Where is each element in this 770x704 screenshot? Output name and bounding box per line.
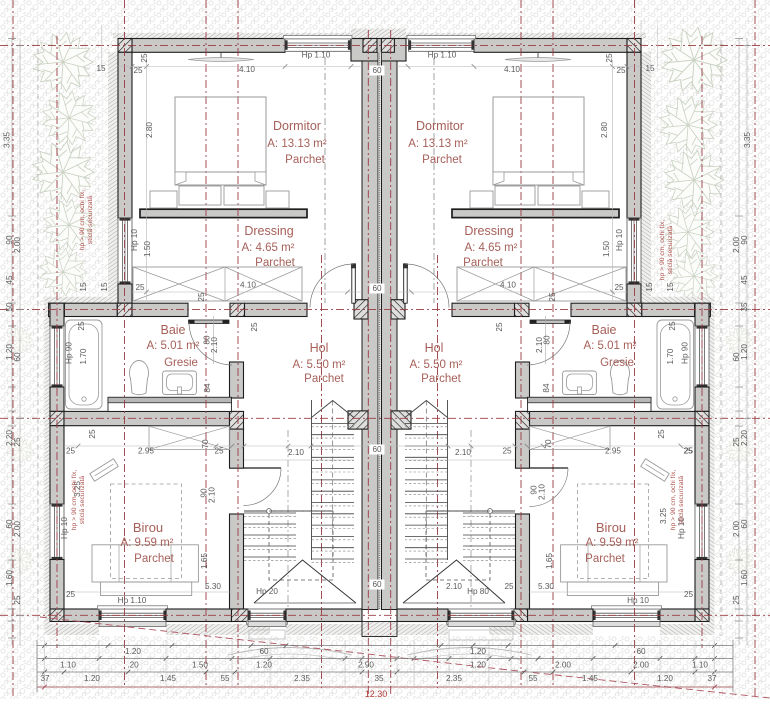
svg-text:sticlă securizată: sticlă securizată [667,226,674,275]
svg-text:Hp 1.10: Hp 1.10 [302,51,331,60]
svg-text:2.80: 2.80 [600,122,609,138]
svg-text:25: 25 [605,53,614,63]
svg-text:15: 15 [645,64,655,73]
svg-text:25: 25 [732,437,741,447]
svg-text:25: 25 [614,283,624,292]
svg-text:Hp 10: Hp 10 [615,229,624,251]
svg-text:Gresie: Gresie [164,357,198,369]
svg-text:sticlă securizată: sticlă securizată [678,476,685,525]
svg-text:1.20: 1.20 [657,674,673,683]
svg-text:25: 25 [495,322,504,332]
svg-text:25: 25 [684,590,694,599]
svg-text:35: 35 [740,302,749,312]
svg-text:25: 25 [616,66,626,75]
svg-text:1.20: 1.20 [470,661,486,670]
svg-text:45: 45 [5,275,14,285]
svg-text:12.30: 12.30 [365,689,388,699]
svg-text:1.50: 1.50 [192,661,208,670]
svg-text:15: 15 [100,282,109,292]
svg-text:Birou: Birou [133,520,163,535]
svg-text:25: 25 [214,447,224,456]
svg-text:2.10: 2.10 [208,487,217,503]
svg-text:Dormitor: Dormitor [273,119,321,133]
svg-text:45: 45 [740,275,749,285]
svg-text:2.00: 2.00 [13,521,22,537]
svg-text:1.60: 1.60 [740,570,749,586]
svg-text:2.10: 2.10 [538,484,547,500]
svg-text:A: 9.59 m²: A: 9.59 m² [120,537,173,549]
svg-text:5.30: 5.30 [538,582,554,591]
svg-text:2.10: 2.10 [288,448,304,457]
svg-text:Hp 90: Hp 90 [681,342,690,364]
svg-text:A: 13.13 m²: A: 13.13 m² [267,138,327,150]
svg-text:A: 4.65 m²: A: 4.65 m² [241,242,294,254]
svg-text:4.10: 4.10 [504,65,520,74]
svg-text:35: 35 [374,674,384,683]
svg-text:4.10: 4.10 [240,281,256,290]
svg-text:Parchet: Parchet [285,154,325,166]
svg-text:1.20: 1.20 [470,647,486,656]
svg-text:hp > 90 cm, ochi fix,: hp > 90 cm, ochi fix, [659,220,666,281]
svg-text:70: 70 [544,439,553,449]
svg-text:2.00: 2.00 [732,237,741,253]
svg-text:25: 25 [502,447,512,456]
svg-text:A: 13.13 m²: A: 13.13 m² [408,138,468,150]
svg-text:Baie: Baie [591,323,616,337]
svg-text:sticlă securizată: sticlă securizată [79,476,86,525]
svg-text:Hp 10: Hp 10 [60,517,69,539]
svg-text:15: 15 [79,282,88,292]
svg-text:sticlă securizată: sticlă securizată [87,196,94,245]
svg-text:1.20: 1.20 [84,674,100,683]
svg-text:37: 37 [40,674,50,683]
svg-text:25: 25 [250,322,259,332]
svg-text:Parchet: Parchet [422,154,462,166]
svg-text:3.25: 3.25 [659,508,668,524]
svg-text:15: 15 [96,64,106,73]
svg-text:Hp 1.10: Hp 1.10 [118,596,147,605]
svg-text:25: 25 [548,292,557,302]
svg-text:60: 60 [372,445,382,454]
svg-text:2.00: 2.00 [13,237,22,253]
svg-text:25: 25 [732,595,741,605]
svg-text:1.20: 1.20 [125,647,141,656]
svg-text:2.35: 2.35 [294,674,310,683]
svg-text:hp > 90 cm, ochi fix,: hp > 90 cm, ochi fix, [670,470,677,531]
svg-text:Dressing: Dressing [464,224,513,238]
svg-text:60: 60 [372,580,382,589]
svg-text:A: 5.01 m²: A: 5.01 m² [146,340,199,352]
svg-text:2.00: 2.00 [555,661,571,670]
svg-text:Baie: Baie [160,323,185,337]
svg-text:Birou: Birou [596,520,626,535]
svg-text:2.20: 2.20 [740,430,749,446]
svg-text:25: 25 [135,283,145,292]
svg-text:Hp 10: Hp 10 [627,596,649,605]
svg-text:1.45: 1.45 [582,674,598,683]
svg-text:2.90: 2.90 [358,661,374,670]
svg-text:25: 25 [77,321,86,331]
svg-text:2.00: 2.00 [732,521,741,537]
svg-text:37: 37 [707,674,717,683]
svg-text:Hp 10: Hp 10 [130,229,139,251]
svg-text:1.70: 1.70 [666,348,675,364]
svg-text:A: 5.50 m²: A: 5.50 m² [292,359,345,371]
svg-text:Hol: Hol [425,341,444,355]
svg-text:60: 60 [636,647,646,656]
svg-text:25: 25 [504,582,514,591]
svg-text:2.35: 2.35 [446,674,462,683]
svg-text:Parchet: Parchet [585,553,625,565]
svg-text:A: 5.50 m²: A: 5.50 m² [409,359,462,371]
svg-text:2.00: 2.00 [633,661,649,670]
svg-text:1.60: 1.60 [5,570,14,586]
svg-text:1.70: 1.70 [79,348,88,364]
svg-text:1.65: 1.65 [545,553,554,569]
svg-text:5.30: 5.30 [205,582,221,591]
svg-text:2.95: 2.95 [605,447,621,456]
svg-text:Parchet: Parchet [304,373,344,385]
svg-text:25: 25 [683,447,693,456]
svg-text:60: 60 [372,284,382,293]
svg-text:15: 15 [666,282,675,292]
svg-text:60: 60 [13,352,22,362]
svg-text:84: 84 [542,383,551,393]
svg-text:25: 25 [133,66,143,75]
svg-text:60: 60 [259,647,269,656]
svg-text:hp > 90 cm, ochi fix,: hp > 90 cm, ochi fix, [71,470,78,531]
svg-text:.20: .20 [127,661,139,670]
svg-text:25: 25 [668,321,677,331]
svg-text:A: 9.59 m²: A: 9.59 m² [585,537,638,549]
svg-text:4.10: 4.10 [239,65,255,74]
svg-text:Parchet: Parchet [463,257,503,269]
svg-text:3.35: 3.35 [3,132,12,148]
svg-text:55: 55 [220,674,230,683]
svg-text:25: 25 [66,590,76,599]
svg-text:25: 25 [66,447,76,456]
svg-text:Gresie: Gresie [600,357,634,369]
svg-text:Hp 1.10: Hp 1.10 [428,51,457,60]
svg-text:1.45: 1.45 [160,674,176,683]
svg-text:Parchet: Parchet [421,373,461,385]
svg-text:1.50: 1.50 [143,241,152,257]
svg-text:Parchet: Parchet [134,553,174,565]
svg-text:1.65: 1.65 [200,553,209,569]
svg-text:Dormitor: Dormitor [416,119,464,133]
svg-text:60: 60 [372,66,382,75]
svg-text:Hp 80: Hp 80 [467,587,489,596]
svg-text:hp > 90 cm, ochi fix,: hp > 90 cm, ochi fix, [79,190,86,251]
svg-text:25: 25 [88,429,97,439]
svg-text:90: 90 [740,235,749,245]
svg-text:25: 25 [140,53,149,63]
svg-text:1.50: 1.50 [602,241,611,257]
svg-text:Dressing: Dressing [244,224,293,238]
svg-text:3.35: 3.35 [743,132,752,148]
svg-text:15: 15 [645,282,654,292]
svg-text:50: 50 [5,302,14,312]
svg-text:2.10: 2.10 [455,448,471,457]
svg-text:Hp 90: Hp 90 [65,342,74,364]
svg-text:55: 55 [528,674,538,683]
svg-text:70: 70 [201,439,210,449]
svg-text:Hol: Hol [310,341,329,355]
svg-text:1.20: 1.20 [256,661,272,670]
svg-text:60: 60 [740,519,749,529]
svg-text:Parchet: Parchet [255,257,295,269]
svg-text:25: 25 [13,437,22,447]
svg-text:60: 60 [732,352,741,362]
svg-text:4.10: 4.10 [500,281,516,290]
svg-text:25: 25 [657,429,666,439]
svg-text:1.20: 1.20 [740,344,749,360]
svg-text:25: 25 [13,595,22,605]
svg-text:Hp 20: Hp 20 [256,587,278,596]
svg-text:84: 84 [203,383,212,393]
svg-text:2.95: 2.95 [138,447,154,456]
svg-text:1.10: 1.10 [692,661,708,670]
svg-text:2.10: 2.10 [210,337,219,353]
svg-text:A: 5.01 m²: A: 5.01 m² [583,340,636,352]
svg-text:1.10: 1.10 [60,661,76,670]
svg-text:2.10: 2.10 [446,582,462,591]
svg-text:2.10: 2.10 [535,337,544,353]
svg-text:2.80: 2.80 [145,122,154,138]
svg-text:A: 4.65 m²: A: 4.65 m² [464,242,517,254]
svg-text:25: 25 [197,292,206,302]
